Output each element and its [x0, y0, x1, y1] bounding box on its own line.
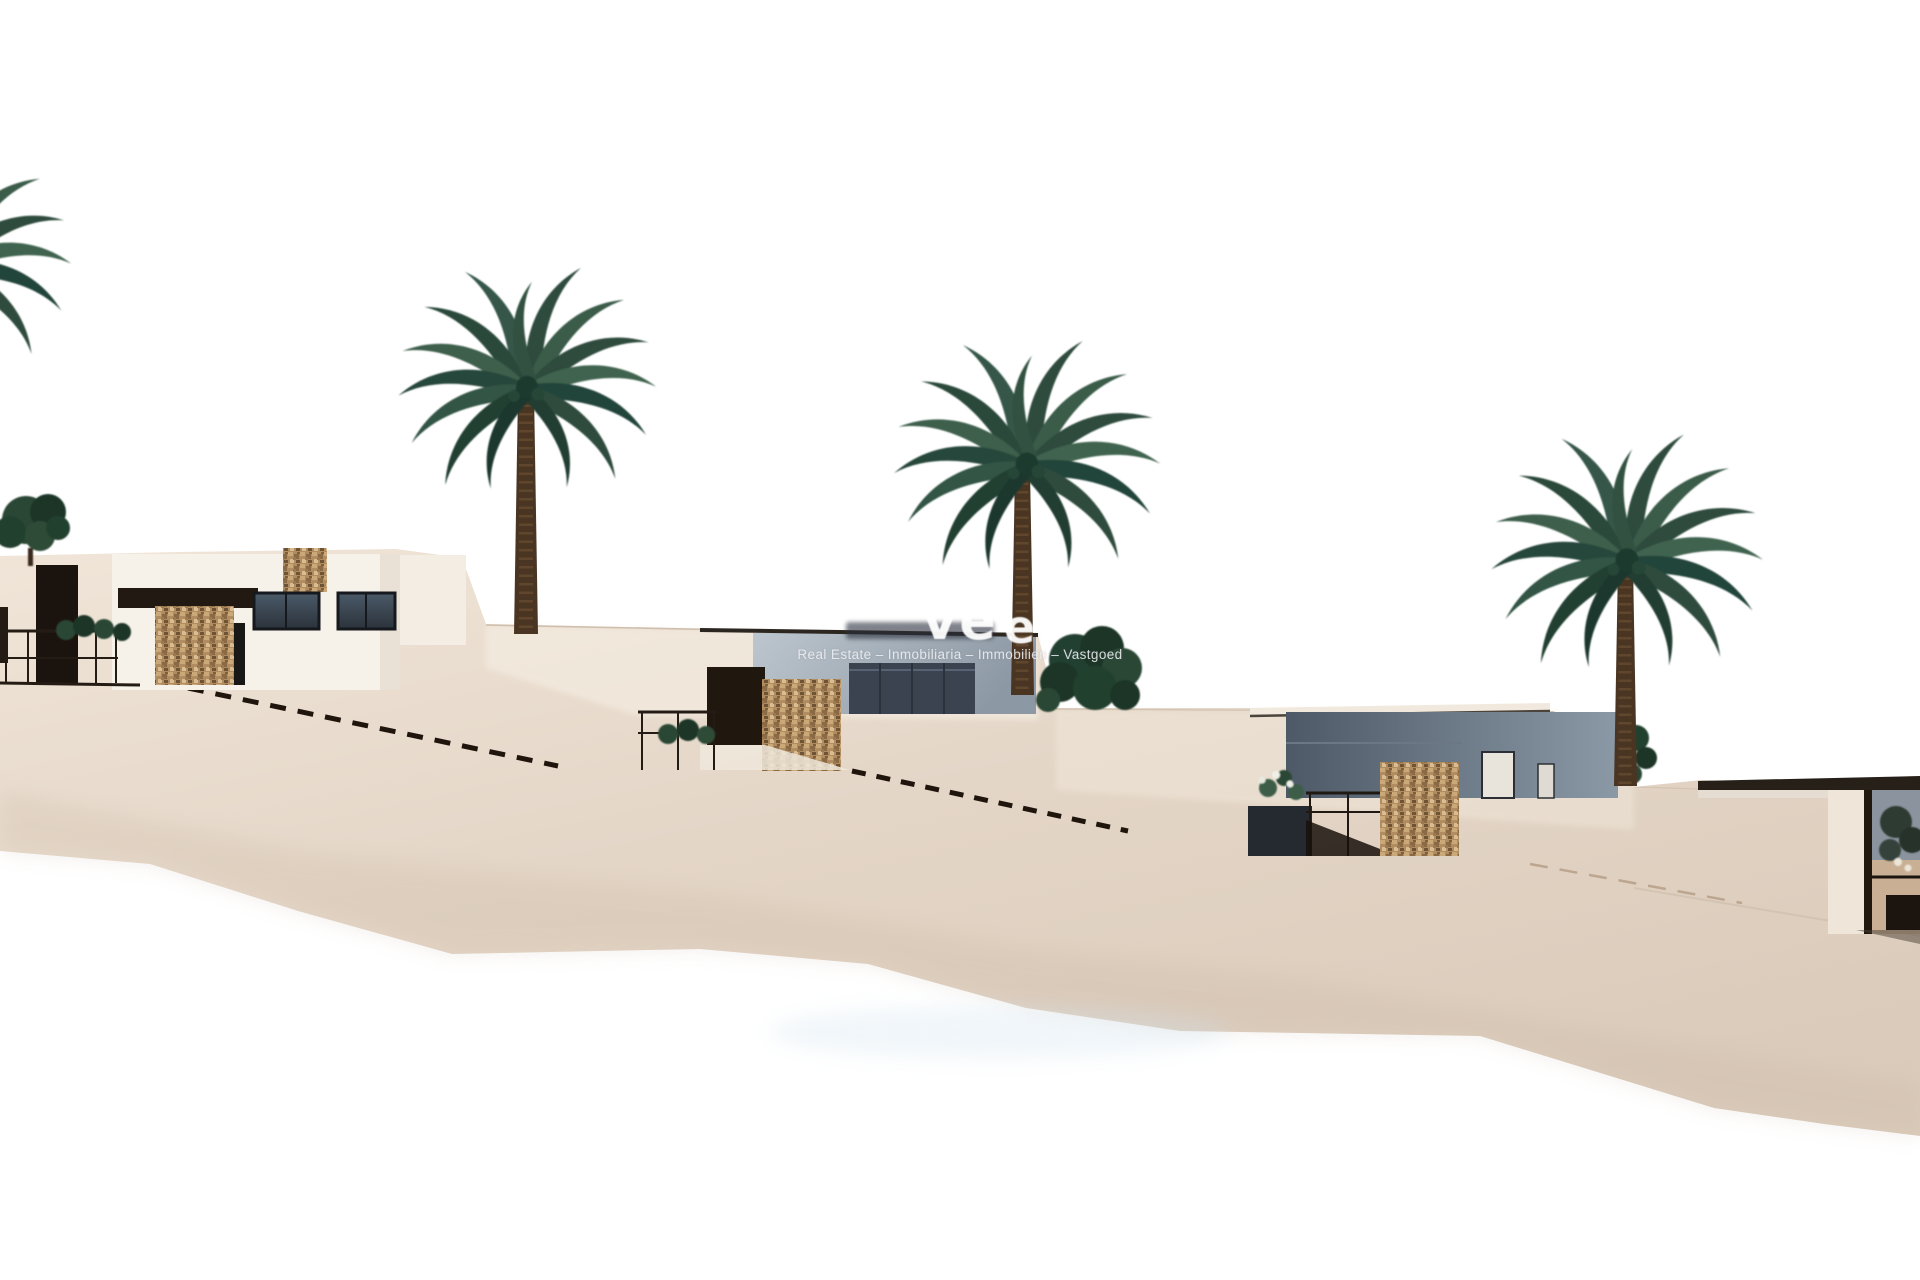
villa-right-door[interactable]	[1482, 752, 1514, 798]
property-render: ve e Real Estate – Inmobiliaria – Immobi…	[0, 0, 1920, 1280]
villa-left-stone-pillar	[155, 606, 234, 685]
villa-left-window-left	[254, 593, 319, 629]
far-right-frame-post	[1864, 790, 1872, 934]
villa-left-window-right	[338, 593, 395, 629]
villa-left-eave-band	[118, 588, 258, 608]
foreground-blue-shadow	[770, 1006, 1230, 1058]
villa-left-roof-chimney	[283, 548, 327, 592]
villa-middle-terrace-opening	[849, 663, 975, 714]
render-scene	[0, 0, 1920, 1280]
far-right-wall-sliver	[1698, 790, 1830, 798]
villa-left-parapet	[234, 623, 245, 685]
far-right-planter	[1886, 895, 1920, 930]
far-right-wall	[1828, 790, 1868, 934]
villa-right-stone-pillar	[1380, 762, 1459, 856]
palm-tree-1-trunk	[514, 392, 538, 634]
villa-right-window	[1538, 764, 1554, 798]
villa-left-side-wing	[398, 555, 466, 645]
palm-tree-3-trunk	[1614, 565, 1637, 786]
